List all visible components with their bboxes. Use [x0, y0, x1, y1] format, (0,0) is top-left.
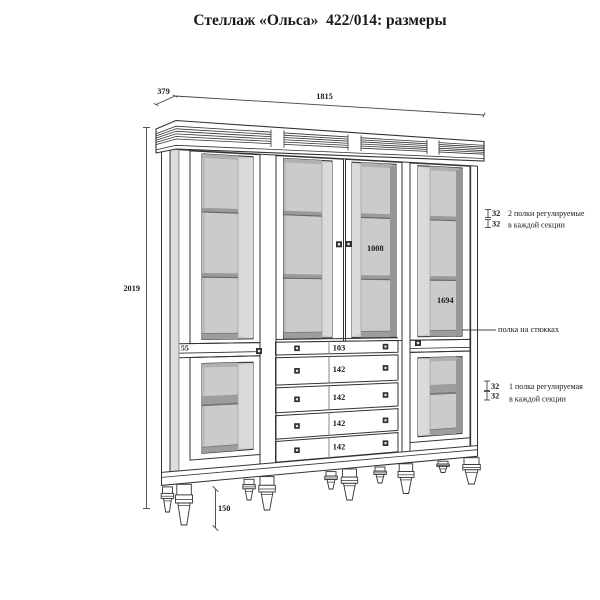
svg-text:2 полки регулируемые: 2 полки регулируемые [508, 209, 585, 218]
svg-text:103: 103 [333, 343, 345, 352]
svg-text:полка на стяжках: полка на стяжках [498, 325, 560, 334]
svg-text:142: 142 [333, 419, 345, 428]
svg-text:в каждой секции: в каждой секции [509, 395, 567, 404]
svg-text:1815: 1815 [316, 92, 333, 101]
svg-text:55: 55 [181, 344, 189, 353]
svg-text:1008: 1008 [367, 244, 384, 253]
svg-text:379: 379 [157, 87, 169, 96]
svg-text:150: 150 [218, 504, 230, 513]
svg-text:32: 32 [491, 382, 499, 391]
svg-text:32: 32 [492, 209, 500, 218]
svg-text:142: 142 [333, 365, 345, 374]
svg-text:2019: 2019 [123, 284, 140, 293]
svg-text:1694: 1694 [437, 296, 454, 305]
svg-text:1 полка регулируемая: 1 полка регулируемая [509, 382, 583, 391]
svg-text:142: 142 [333, 443, 345, 452]
svg-text:32: 32 [491, 392, 499, 401]
svg-text:32: 32 [492, 220, 500, 229]
svg-text:142: 142 [333, 393, 345, 402]
svg-text:в каждой секции: в каждой секции [508, 221, 566, 230]
